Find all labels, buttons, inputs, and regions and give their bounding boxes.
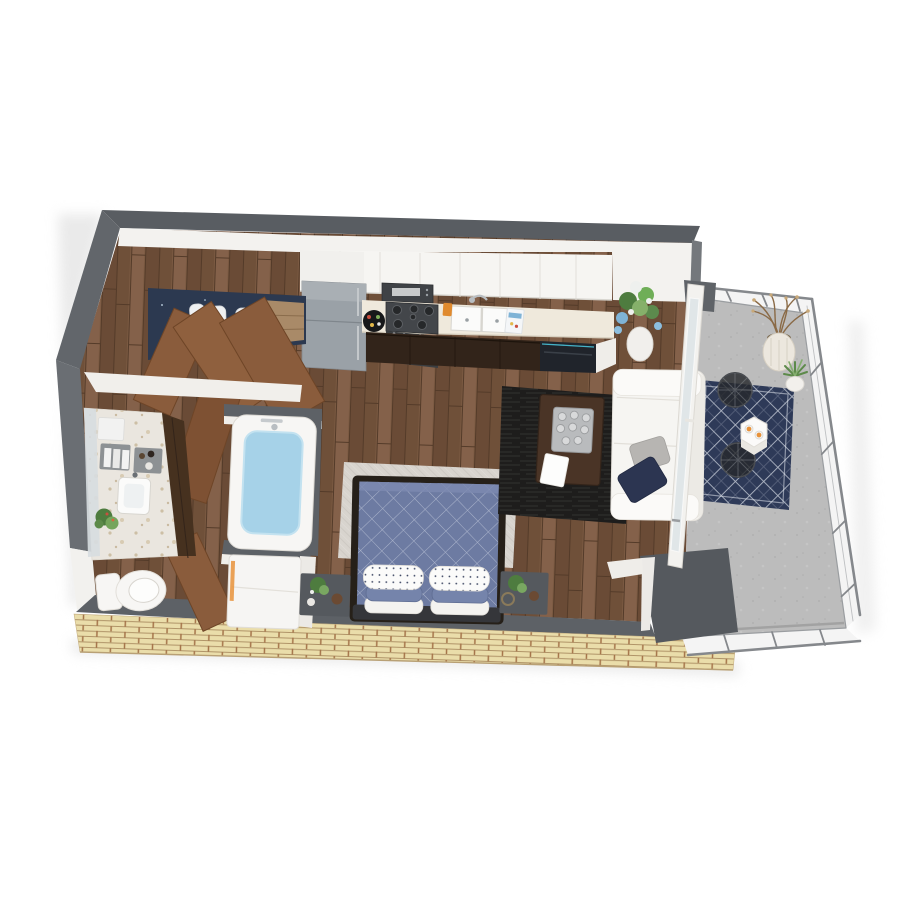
vanity (84, 408, 196, 560)
coffee-table (536, 394, 605, 489)
orange-cup (443, 303, 453, 317)
floor-plan-svg (0, 0, 900, 900)
pillow-stack-left (363, 565, 424, 614)
refrigerator (302, 281, 366, 371)
tub-water (241, 431, 303, 535)
cereal-box (505, 308, 524, 334)
floor-plan-rendering (0, 0, 900, 900)
washer-unit (227, 555, 301, 629)
serving-tray (363, 310, 385, 332)
microwave (382, 283, 433, 303)
bathtub (227, 414, 317, 552)
dishwasher (540, 341, 596, 373)
door-handle (672, 520, 680, 521)
balcony-side-table (741, 417, 767, 455)
book (540, 453, 569, 487)
nightstand-right (499, 571, 548, 615)
nightstand-left (299, 573, 350, 617)
pillow-stack-right (429, 566, 490, 615)
bed (349, 475, 506, 624)
balcony-chair-top (718, 372, 752, 408)
